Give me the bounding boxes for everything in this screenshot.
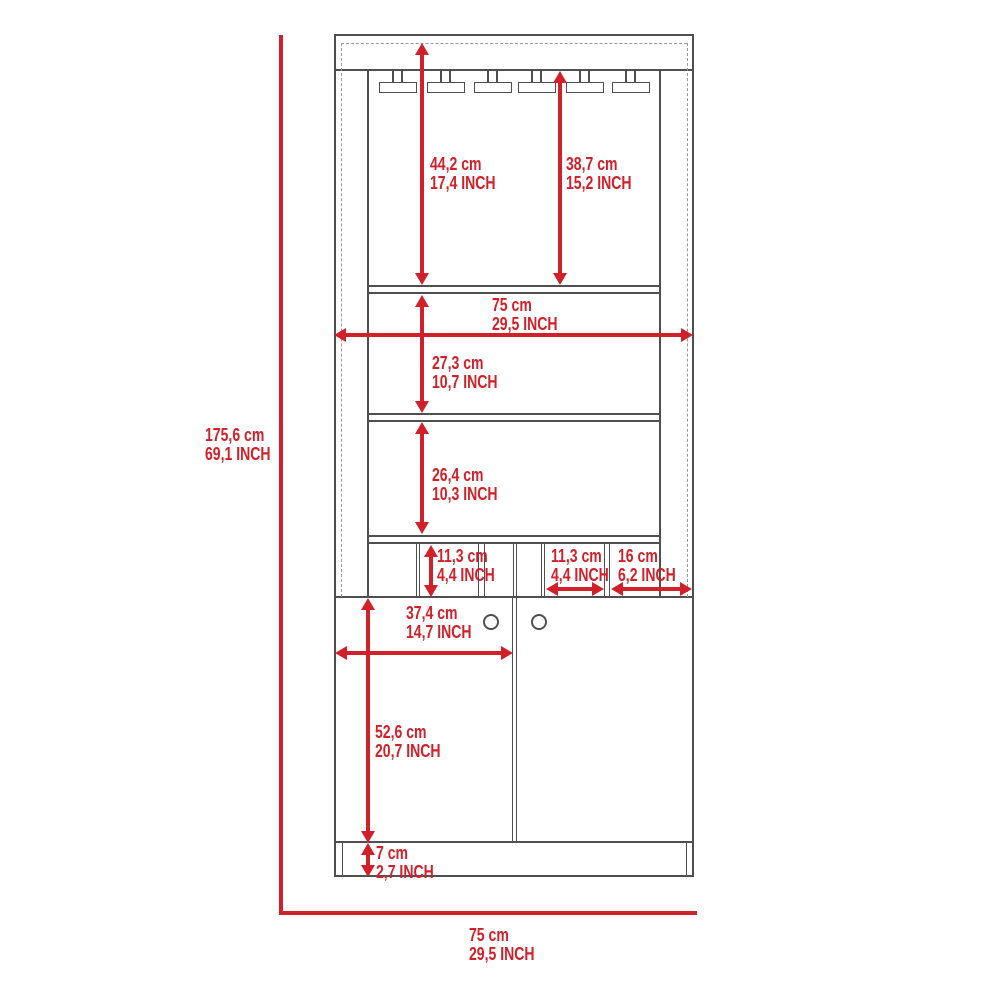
dim-arrow-base-height (361, 843, 375, 877)
dashed-line-left (341, 43, 342, 597)
rack-post (449, 70, 451, 82)
shelf-3-top-line (368, 535, 660, 537)
door-knob-right (531, 614, 547, 630)
cabinet-top-edge (334, 34, 694, 36)
overall-height-line (279, 35, 283, 914)
stemware-rack (612, 82, 650, 93)
door-knob-left (483, 614, 499, 630)
door-right-edge (516, 598, 517, 842)
cabinet-left-edge (334, 34, 336, 877)
dim-arrow-glasses-left (415, 43, 429, 285)
door-left-edge (512, 598, 513, 842)
cubby-divider-line (541, 544, 542, 597)
carcass-bottom-line (334, 596, 694, 598)
dim-label-width-mid: 75 cm29,5 INCH (492, 296, 558, 334)
cubby-divider-line (609, 544, 610, 597)
dim-label-door-height: 52,6 cm20,7 INCH (375, 723, 441, 761)
rack-post (588, 70, 590, 82)
dim-label-lower-shelf: 26,4 cm10,3 INCH (432, 466, 498, 504)
dim-label-cubby-width: 11,3 cm4,4 INCH (551, 547, 609, 585)
top-panel-line (334, 69, 694, 71)
dim-arrow-cubby-height (424, 545, 438, 597)
dashed-line-top (341, 43, 687, 44)
dim-label-middle-shelf: 27,3 cm10,7 INCH (432, 354, 498, 392)
shelf-1-top-line (368, 285, 660, 287)
cabinet-right-edge (692, 34, 694, 877)
cubby-divider-line (416, 544, 417, 597)
stemware-rack (427, 82, 465, 93)
shelf-2-bottom-line (368, 420, 660, 422)
rack-post (540, 70, 542, 82)
dim-label-base-height: 7 cm2,7 INCH (376, 844, 434, 882)
stemware-rack (474, 82, 512, 93)
dim-label-glasses-right: 38,7 cm15,2 INCH (566, 155, 632, 193)
stemware-rack (379, 82, 417, 93)
rack-post (531, 70, 533, 82)
dim-label-cubby-depth: 16 cm6,2 INCH (618, 547, 676, 585)
dim-label-glasses-left: 44,2 cm17,4 INCH (430, 155, 496, 193)
dim-label-cubby-height: 11,3 cm4,4 INCH (437, 547, 495, 585)
shelf-2-top-line (368, 413, 660, 415)
rack-post (496, 70, 498, 82)
dim-arrow-lower-shelf (415, 422, 429, 534)
stemware-rack (518, 82, 556, 93)
overall-width-line (279, 911, 697, 915)
rack-post (440, 70, 442, 82)
kick-plate-right-line (686, 843, 687, 875)
rack-post (579, 70, 581, 82)
dim-arrow-glasses-right (553, 71, 567, 285)
rack-post (487, 70, 489, 82)
dim-label-overall-width: 75 cm29,5 INCH (469, 926, 535, 964)
kick-plate-left-line (342, 843, 343, 875)
cubby-divider-line (419, 544, 420, 597)
stemware-rack (566, 82, 604, 93)
dim-label-door-width: 37,4 cm14,7 INCH (406, 604, 472, 642)
dashed-line-right (687, 43, 688, 597)
rack-post (392, 70, 394, 82)
shelf-3-bottom-line (368, 542, 660, 544)
cubby-divider-line (513, 544, 514, 597)
dim-arrow-door-height (361, 598, 375, 843)
dim-label-overall-height: 175,6 cm69,1 INCH (205, 426, 271, 464)
shelf-1-bottom-line (368, 292, 660, 294)
cubby-divider-line (516, 544, 517, 597)
furniture-dimension-diagram: 175,6 cm69,1 INCH 44,2 cm17,4 INCH 38,7 … (0, 0, 990, 990)
rack-post (625, 70, 627, 82)
rack-post (634, 70, 636, 82)
rack-post (401, 70, 403, 82)
dim-arrow-middle-shelf (415, 295, 429, 413)
cubby-divider-line (544, 544, 545, 597)
